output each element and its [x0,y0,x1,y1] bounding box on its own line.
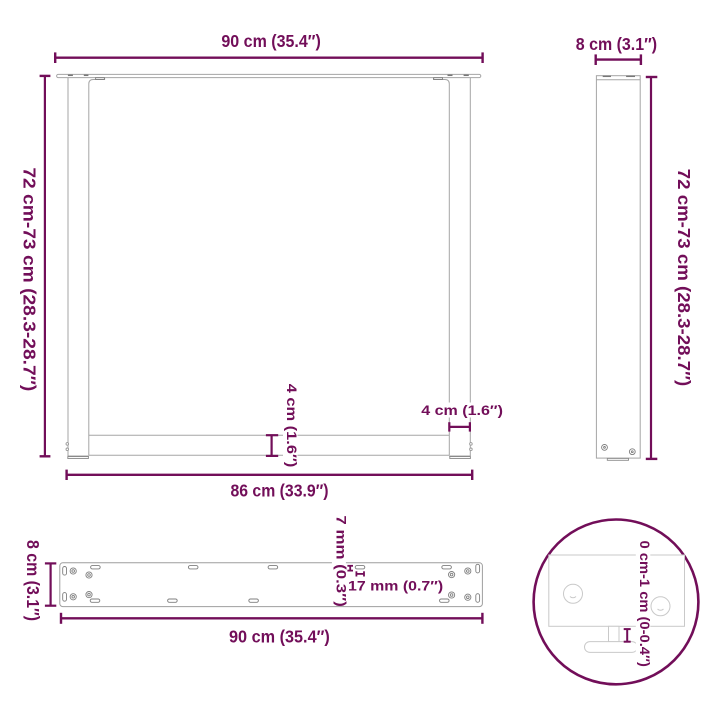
svg-text:4 cm (1.6″): 4 cm (1.6″) [421,403,503,418]
svg-text:8 cm (3.1″): 8 cm (3.1″) [23,540,43,621]
svg-text:72 cm-73 cm (28.3-28.7″): 72 cm-73 cm (28.3-28.7″) [20,167,40,391]
svg-text:7 mm (0.3″): 7 mm (0.3″) [334,515,349,606]
svg-text:90 cm (35.4″): 90 cm (35.4″) [221,31,320,51]
svg-text:90 cm (35.4″): 90 cm (35.4″) [229,627,330,647]
svg-text:17 mm (0.7″): 17 mm (0.7″) [348,578,443,593]
svg-text:72 cm-73 cm (28.3-28.7″): 72 cm-73 cm (28.3-28.7″) [674,169,694,387]
svg-text:0 cm-1 cm (0-0.4″): 0 cm-1 cm (0-0.4″) [637,541,652,667]
svg-text:8 cm (3.1″): 8 cm (3.1″) [576,34,657,54]
svg-text:4 cm (1.6″): 4 cm (1.6″) [284,384,299,468]
svg-text:86 cm (33.9″): 86 cm (33.9″) [230,480,328,500]
